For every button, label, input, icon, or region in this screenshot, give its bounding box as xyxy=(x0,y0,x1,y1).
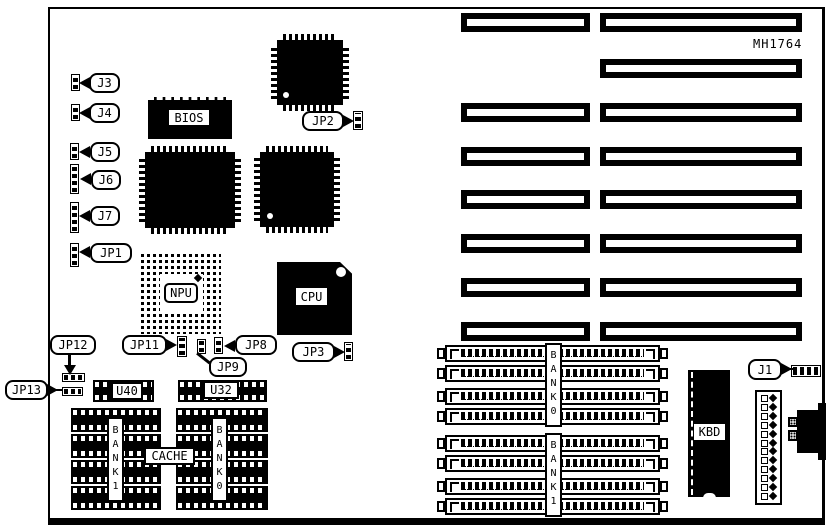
isa-slot-long xyxy=(600,322,802,341)
header-pin-row xyxy=(761,422,776,429)
isa-slot-short xyxy=(461,234,590,253)
jumper-label-jp2: JP2 xyxy=(302,111,344,131)
jumper-label-jp8: JP8 xyxy=(235,335,277,355)
jumper-label-j1: J1 xyxy=(748,359,782,380)
jumper-label-j7: J7 xyxy=(90,206,120,226)
power-header xyxy=(755,390,782,505)
jumper-label-j6: J6 xyxy=(91,170,121,190)
simm-clip xyxy=(646,459,655,469)
isa-slot-short xyxy=(461,13,590,32)
qfp-chip xyxy=(271,34,349,111)
simm-ear xyxy=(437,348,445,359)
pin1-dot xyxy=(283,92,289,98)
header-pin-row xyxy=(761,484,776,491)
connector-pins xyxy=(64,375,83,380)
callout-pointer xyxy=(79,210,90,222)
simm-clip xyxy=(450,459,459,469)
jp11-connector xyxy=(177,336,187,357)
simm-bank1-label: BANK1 xyxy=(545,433,562,517)
simm-ear xyxy=(660,458,668,469)
chip-body xyxy=(145,152,235,228)
chip-pins xyxy=(235,158,241,222)
qfp-chip xyxy=(254,146,340,233)
connector-pins xyxy=(72,245,77,265)
simm-ear xyxy=(660,368,668,379)
callout-pointer xyxy=(166,339,177,351)
simm-clip xyxy=(646,349,655,359)
chip-pins xyxy=(343,46,349,99)
header-pin-row xyxy=(761,431,776,438)
isa-slot-long xyxy=(600,103,802,122)
callout-pointer xyxy=(80,173,91,185)
callout-pointer xyxy=(343,115,354,127)
jumper-label-j4: J4 xyxy=(89,103,120,123)
motherboard-diagram: MH1764 BIOS xyxy=(0,0,831,527)
j1-connector xyxy=(791,365,821,377)
chip-pins xyxy=(151,228,229,234)
isa-slot-long xyxy=(600,59,802,78)
header-pin-row xyxy=(761,475,776,482)
header-pin-row xyxy=(761,404,776,411)
connector-pins xyxy=(64,389,81,394)
simm-ear xyxy=(437,501,445,512)
simm-ear xyxy=(660,501,668,512)
chip-pins xyxy=(334,158,340,221)
header-pin-row xyxy=(761,440,776,447)
callout-pointer xyxy=(79,246,90,258)
isa-slot-long xyxy=(600,278,802,297)
cpu-label: CPU xyxy=(296,288,327,305)
connector-pins xyxy=(346,344,351,359)
jp3-connector xyxy=(344,342,353,361)
callout-pointer xyxy=(224,340,235,352)
din-connector-pin xyxy=(788,430,798,441)
kbd-notch xyxy=(703,493,716,498)
isa-slot-long xyxy=(600,147,802,166)
kbd-label: KBD xyxy=(693,423,726,441)
simm-clip xyxy=(450,412,459,422)
connector-pins xyxy=(355,113,361,128)
j5-connector xyxy=(70,143,79,160)
din-connector-edge xyxy=(818,403,826,460)
jumper-label-j5: J5 xyxy=(90,142,120,162)
u40-label: U40 xyxy=(111,382,143,400)
isa-slot-long xyxy=(600,13,802,32)
header-pin-row xyxy=(761,493,776,500)
simm-clip xyxy=(646,502,655,512)
simm-ear xyxy=(660,391,668,402)
jp1-connector xyxy=(70,243,79,267)
isa-slot-short xyxy=(461,103,590,122)
board-part-number: MH1764 xyxy=(753,37,802,51)
jumper-label-jp3: JP3 xyxy=(292,342,335,362)
callout-pointer xyxy=(79,146,90,158)
callout-pointer xyxy=(64,365,76,375)
qfp-chip xyxy=(139,146,241,234)
simm-clip xyxy=(646,412,655,422)
simm-clip xyxy=(450,439,459,449)
jp2-connector xyxy=(353,111,363,130)
jumper-label-j3: J3 xyxy=(89,73,120,93)
simm-clip xyxy=(646,439,655,449)
jumper-label-jp12: JP12 xyxy=(50,335,96,355)
cache-label: CACHE xyxy=(144,447,195,465)
simm-clip xyxy=(646,482,655,492)
chip-pins xyxy=(266,227,328,233)
simm-clip xyxy=(450,349,459,359)
simm-ear xyxy=(437,481,445,492)
simm-ear xyxy=(660,481,668,492)
isa-slot-long xyxy=(600,190,802,209)
din-connector-pin xyxy=(788,417,798,427)
connector-pins xyxy=(199,341,204,352)
simm-ear xyxy=(660,438,668,449)
header-pin-row xyxy=(761,457,776,464)
isa-slot-short xyxy=(461,278,590,297)
isa-slot-short xyxy=(461,190,590,209)
simm-clip xyxy=(646,369,655,379)
isa-slot-long xyxy=(600,234,802,253)
simm-bank0-label: BANK0 xyxy=(545,343,562,427)
bios-label: BIOS xyxy=(168,109,210,126)
callout-pointer xyxy=(334,346,345,358)
simm-ear xyxy=(660,411,668,422)
simm-ear xyxy=(437,458,445,469)
callout-pointer xyxy=(47,384,58,396)
connector-pins xyxy=(73,76,78,89)
simm-clip xyxy=(450,369,459,379)
simm-clip xyxy=(450,392,459,402)
jumper-label-jp1: JP1 xyxy=(90,243,132,263)
jumper-label-jp13: JP13 xyxy=(5,380,48,400)
header-pin-row xyxy=(761,448,776,455)
connector-pins xyxy=(72,166,77,192)
pin1-marker xyxy=(194,274,202,282)
simm-ear xyxy=(660,348,668,359)
simm-ear xyxy=(437,368,445,379)
connector-pins xyxy=(216,339,221,352)
header-pin-row xyxy=(761,466,776,473)
header-pin-row xyxy=(761,395,776,402)
j6-connector xyxy=(70,164,79,194)
connector-pins xyxy=(72,204,77,231)
simm-clip xyxy=(450,502,459,512)
j7-connector xyxy=(70,202,79,233)
jp8-connector xyxy=(214,337,223,354)
simm-ear xyxy=(437,438,445,449)
isa-slot-short xyxy=(461,322,590,341)
cpu-corner-dot xyxy=(336,267,346,277)
npu-label: NPU xyxy=(164,283,198,303)
simm-clip xyxy=(646,392,655,402)
connector-pins xyxy=(793,367,819,375)
connector-pins xyxy=(72,145,77,158)
cache-bank1-label: BANK1 xyxy=(107,417,124,502)
cache-bank0-label: BANK0 xyxy=(211,417,228,502)
callout-pointer xyxy=(781,363,792,375)
pin1-dot xyxy=(267,213,273,219)
simm-ear xyxy=(437,411,445,422)
connector-pins xyxy=(73,106,78,119)
simm-ear xyxy=(437,391,445,402)
isa-slot-short xyxy=(461,147,590,166)
header-pin-row xyxy=(761,413,776,420)
u32-label: U32 xyxy=(203,381,239,399)
connector-pins xyxy=(179,338,185,355)
jumper-label-jp9: JP9 xyxy=(209,357,247,377)
jp13-connector xyxy=(62,387,83,396)
jumper-label-jp11: JP11 xyxy=(122,335,167,355)
simm-clip xyxy=(450,482,459,492)
